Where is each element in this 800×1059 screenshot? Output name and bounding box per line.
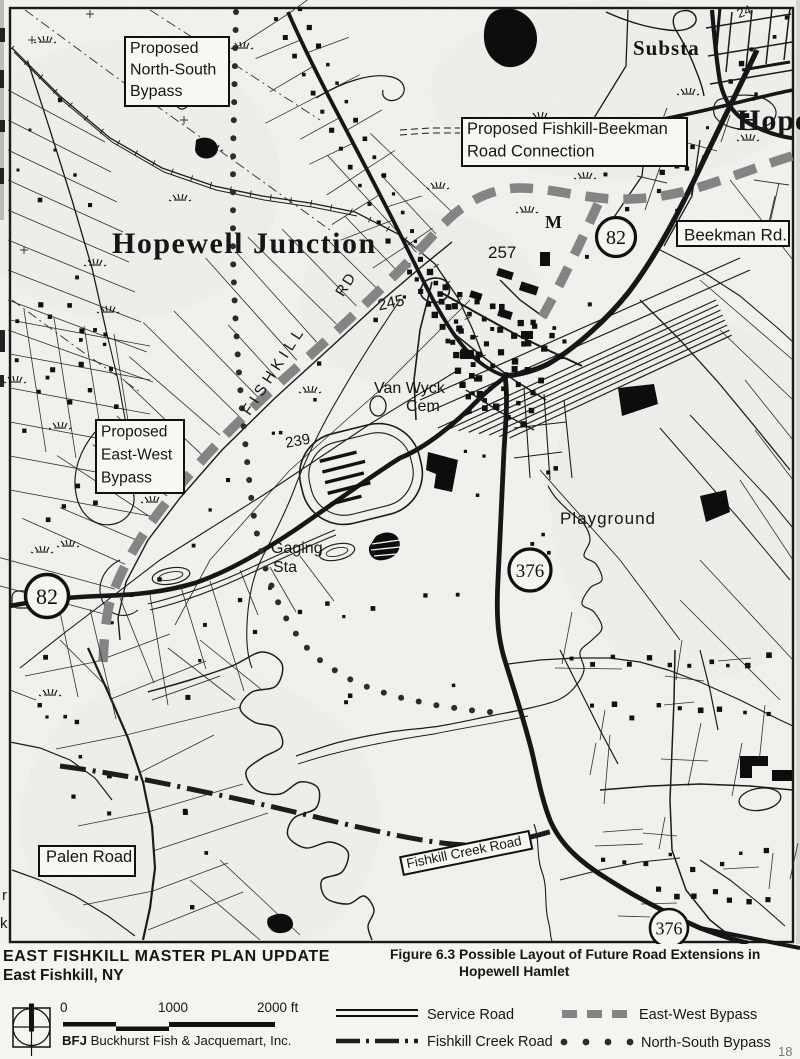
svg-text:Sta: Sta — [273, 559, 297, 576]
svg-text:Substa: Substa — [633, 36, 700, 60]
svg-text:Proposed: Proposed — [101, 423, 167, 440]
svg-text:Hopewell Hamlet: Hopewell Hamlet — [459, 964, 570, 979]
svg-text:Bypass: Bypass — [101, 469, 152, 486]
svg-text:Bypass: Bypass — [130, 83, 182, 100]
svg-text:Fishkill Creek Road: Fishkill Creek Road — [427, 1034, 553, 1050]
svg-text:k: k — [0, 915, 8, 932]
svg-text:2000 ft: 2000 ft — [257, 1000, 299, 1015]
svg-text:Gaging: Gaging — [271, 540, 323, 557]
svg-text:North-South Bypass: North-South Bypass — [641, 1035, 771, 1051]
svg-text:East Fishkill, NY: East Fishkill, NY — [3, 967, 124, 984]
svg-text:BFJ Buckhurst Fish & Jacquemar: BFJ Buckhurst Fish & Jacquemart, Inc. — [62, 1033, 291, 1048]
svg-text:East-West Bypass: East-West Bypass — [639, 1007, 757, 1023]
svg-text:Hope: Hope — [737, 104, 800, 137]
svg-text:Playground: Playground — [560, 509, 656, 528]
svg-text:1000: 1000 — [158, 1000, 188, 1015]
svg-text:Proposed: Proposed — [130, 40, 199, 57]
svg-text:257: 257 — [488, 243, 516, 262]
svg-text:Palen Road: Palen Road — [46, 848, 132, 866]
svg-text:Van Wyck: Van Wyck — [374, 380, 446, 397]
svg-text:Road Connection: Road Connection — [467, 143, 595, 161]
svg-text:Proposed Fishkill-Beekman: Proposed Fishkill-Beekman — [467, 120, 668, 138]
svg-text:Beekman Rd.: Beekman Rd. — [684, 226, 787, 245]
svg-text:376: 376 — [516, 561, 545, 582]
svg-text:East-West: East-West — [101, 446, 173, 463]
svg-text:Hopewell Junction: Hopewell Junction — [112, 227, 377, 260]
svg-text:82: 82 — [36, 584, 58, 609]
svg-text:Figure 6.3 Possible Layout of: Figure 6.3 Possible Layout of Future Roa… — [390, 947, 760, 962]
svg-text:Service Road: Service Road — [427, 1007, 514, 1023]
svg-text:Cem: Cem — [406, 398, 440, 415]
svg-text:North-South: North-South — [130, 61, 216, 78]
svg-text:0: 0 — [60, 1000, 68, 1015]
svg-text:18: 18 — [778, 1044, 792, 1059]
svg-text:EAST FISHKILL MASTER PLAN UPDA: EAST FISHKILL MASTER PLAN UPDATE — [3, 948, 330, 965]
svg-text:376: 376 — [656, 918, 683, 938]
svg-text:r: r — [2, 887, 7, 904]
svg-text:M: M — [545, 212, 562, 232]
svg-text:82: 82 — [606, 227, 626, 249]
